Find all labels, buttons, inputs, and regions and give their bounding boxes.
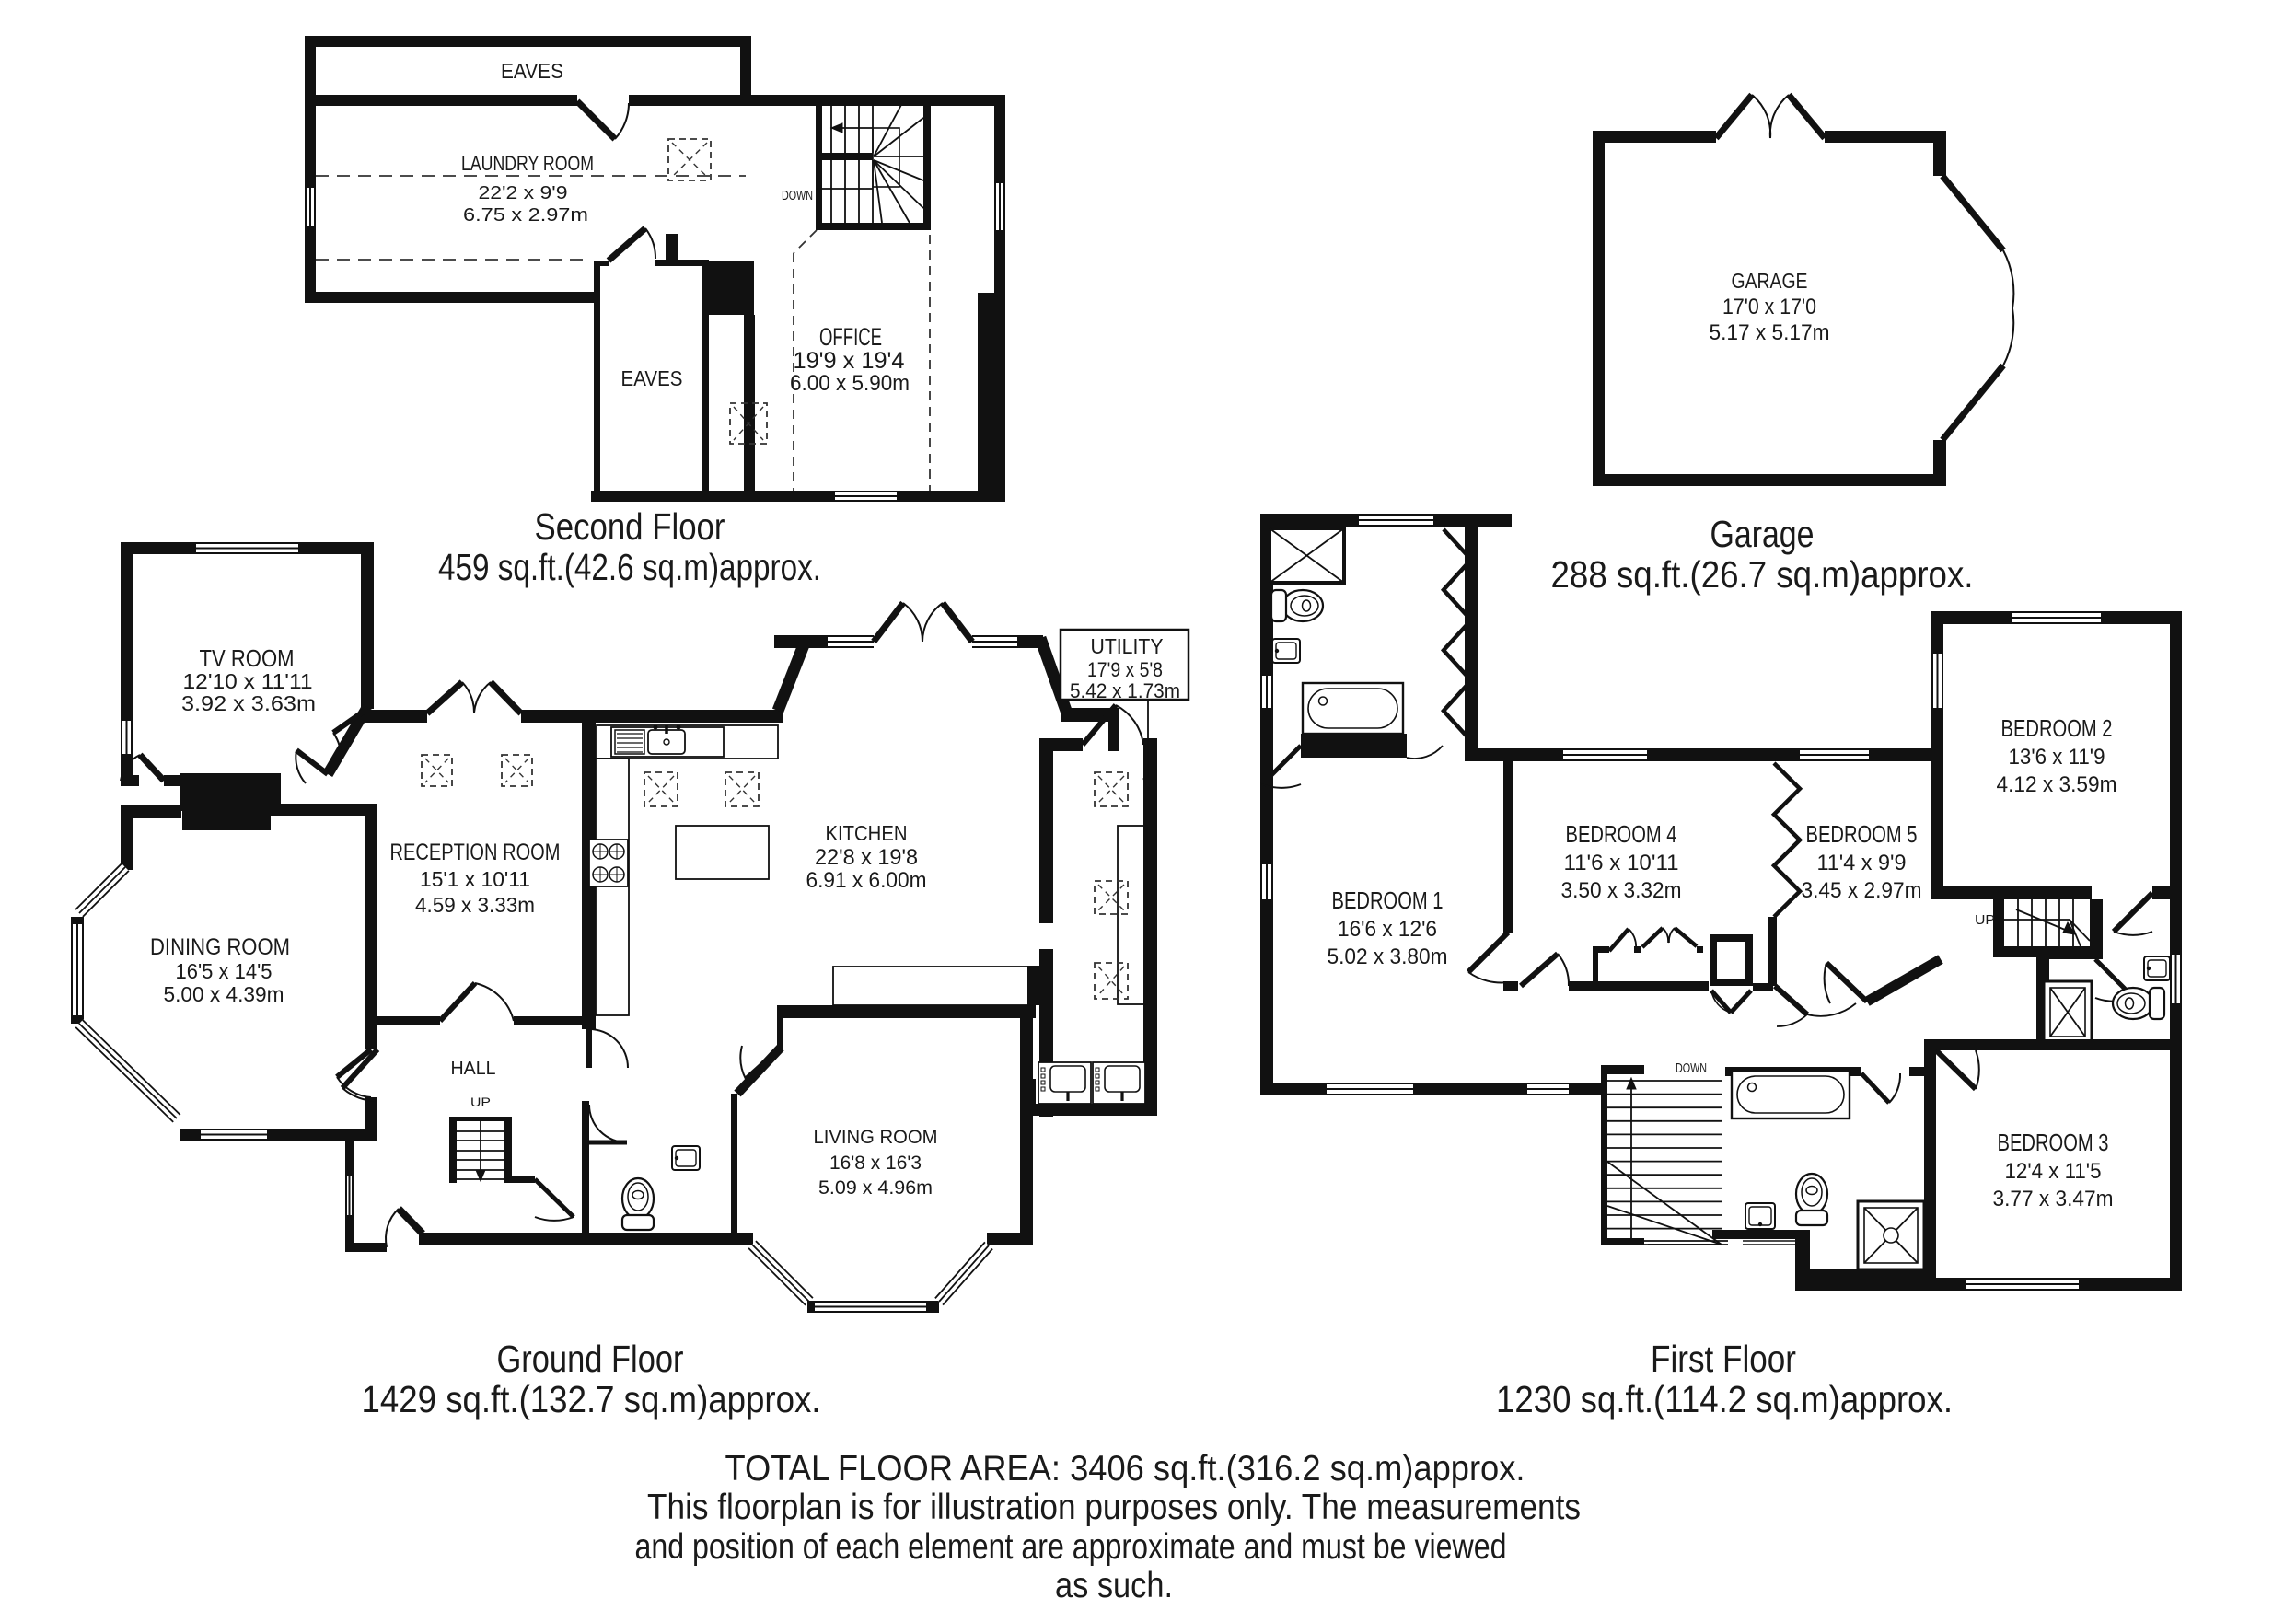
svg-text:LIVING ROOM: LIVING ROOM [814, 1127, 938, 1148]
svg-text:EAVES: EAVES [621, 366, 683, 390]
svg-text:Ground Floor: Ground Floor [497, 1338, 684, 1380]
svg-text:BEDROOM 1: BEDROOM 1 [1332, 888, 1444, 914]
svg-text:BEDROOM 3: BEDROOM 3 [1998, 1130, 2109, 1156]
svg-text:12'4 x 11'5: 12'4 x 11'5 [2005, 1159, 2102, 1184]
svg-text:TOTAL FLOOR AREA: 3406 sq.ft.(: TOTAL FLOOR AREA: 3406 sq.ft.(316.2 sq.m… [725, 1449, 1525, 1489]
svg-text:DOWN: DOWN [1676, 1061, 1707, 1076]
svg-text:DOWN: DOWN [782, 189, 813, 203]
svg-text:This floorplan is for illustra: This floorplan is for illustration purpo… [647, 1488, 1581, 1527]
svg-text:RECEPTION ROOM: RECEPTION ROOM [390, 840, 561, 865]
svg-text:BEDROOM 2: BEDROOM 2 [2001, 716, 2113, 742]
svg-text:GARAGE: GARAGE [1732, 269, 1808, 293]
svg-text:5.02 x 3.80m: 5.02 x 3.80m [1328, 944, 1448, 969]
svg-text:1429 sq.ft.(132.7 sq.m)approx.: 1429 sq.ft.(132.7 sq.m)approx. [362, 1378, 821, 1420]
svg-text:EAVES: EAVES [501, 59, 563, 83]
svg-text:13'6 x 11'9: 13'6 x 11'9 [2009, 745, 2105, 770]
svg-text:4.59 x 3.33m: 4.59 x 3.33m [415, 893, 535, 917]
svg-text:HALL: HALL [451, 1058, 496, 1079]
svg-text:3.45 x 2.97m: 3.45 x 2.97m [1802, 878, 1922, 903]
svg-text:17'0 x 17'0: 17'0 x 17'0 [1722, 295, 1816, 319]
svg-text:11'6 x 10'11: 11'6 x 10'11 [1564, 851, 1679, 875]
svg-text:UTILITY: UTILITY [1091, 634, 1164, 658]
svg-text:as such.: as such. [1055, 1566, 1173, 1605]
svg-text:6.75 x 2.97m: 6.75 x 2.97m [463, 205, 588, 226]
svg-text:22'8 x 19'8: 22'8 x 19'8 [815, 845, 918, 870]
svg-text:OFFICE: OFFICE [819, 323, 882, 351]
svg-text:Garage: Garage [1710, 513, 1815, 555]
svg-text:DINING ROOM: DINING ROOM [150, 934, 290, 960]
svg-text:5.42 x 1.73m: 5.42 x 1.73m [1070, 679, 1180, 702]
svg-text:UP: UP [470, 1095, 491, 1109]
svg-text:19'9 x 19'4: 19'9 x 19'4 [794, 348, 905, 374]
svg-text:LAUNDRY ROOM: LAUNDRY ROOM [461, 152, 594, 175]
svg-text:3.77 x 3.47m: 3.77 x 3.47m [1993, 1187, 2114, 1211]
svg-text:5.09 x 4.96m: 5.09 x 4.96m [818, 1176, 933, 1199]
svg-text:5.00 x 4.39m: 5.00 x 4.39m [164, 982, 284, 1006]
svg-text:459 sq.ft.(42.6 sq.m)approx.: 459 sq.ft.(42.6 sq.m)approx. [438, 546, 821, 588]
svg-text:16'8 x 16'3: 16'8 x 16'3 [829, 1152, 922, 1174]
svg-text:1230 sq.ft.(114.2 sq.m)approx.: 1230 sq.ft.(114.2 sq.m)approx. [1496, 1378, 1953, 1420]
svg-text:Second Floor: Second Floor [535, 505, 725, 548]
svg-text:288 sq.ft.(26.7 sq.m)approx.: 288 sq.ft.(26.7 sq.m)approx. [1551, 553, 1974, 596]
svg-text:TV ROOM: TV ROOM [200, 646, 295, 672]
svg-text:First Floor: First Floor [1651, 1338, 1796, 1380]
svg-text:17'9 x 5'8: 17'9 x 5'8 [1087, 658, 1163, 681]
svg-text:and position of each element a: and position of each element are approxi… [635, 1527, 1507, 1567]
svg-text:16'5 x 14'5: 16'5 x 14'5 [176, 959, 273, 983]
svg-text:4.12 x 3.59m: 4.12 x 3.59m [1997, 772, 2117, 797]
svg-text:5.17 x 5.17m: 5.17 x 5.17m [1710, 320, 1830, 345]
svg-text:BEDROOM 4: BEDROOM 4 [1566, 822, 1677, 848]
svg-text:11'4 x 9'9: 11'4 x 9'9 [1817, 851, 1907, 875]
svg-text:6.91 x 6.00m: 6.91 x 6.00m [806, 869, 927, 893]
svg-text:12'10 x 11'11: 12'10 x 11'11 [183, 669, 313, 693]
svg-text:BEDROOM 5: BEDROOM 5 [1806, 822, 1918, 848]
svg-text:6.00 x 5.90m: 6.00 x 5.90m [790, 371, 910, 396]
svg-text:16'6 x 12'6: 16'6 x 12'6 [1338, 917, 1437, 942]
svg-text:3.50 x 3.32m: 3.50 x 3.32m [1561, 878, 1682, 903]
svg-text:KITCHEN: KITCHEN [826, 821, 908, 845]
svg-text:15'1 x 10'11: 15'1 x 10'11 [420, 867, 530, 891]
svg-text:UP: UP [1975, 913, 1995, 928]
svg-text:22'2 x 9'9: 22'2 x 9'9 [479, 183, 568, 203]
svg-text:3.92 x 3.63m: 3.92 x 3.63m [181, 691, 316, 715]
